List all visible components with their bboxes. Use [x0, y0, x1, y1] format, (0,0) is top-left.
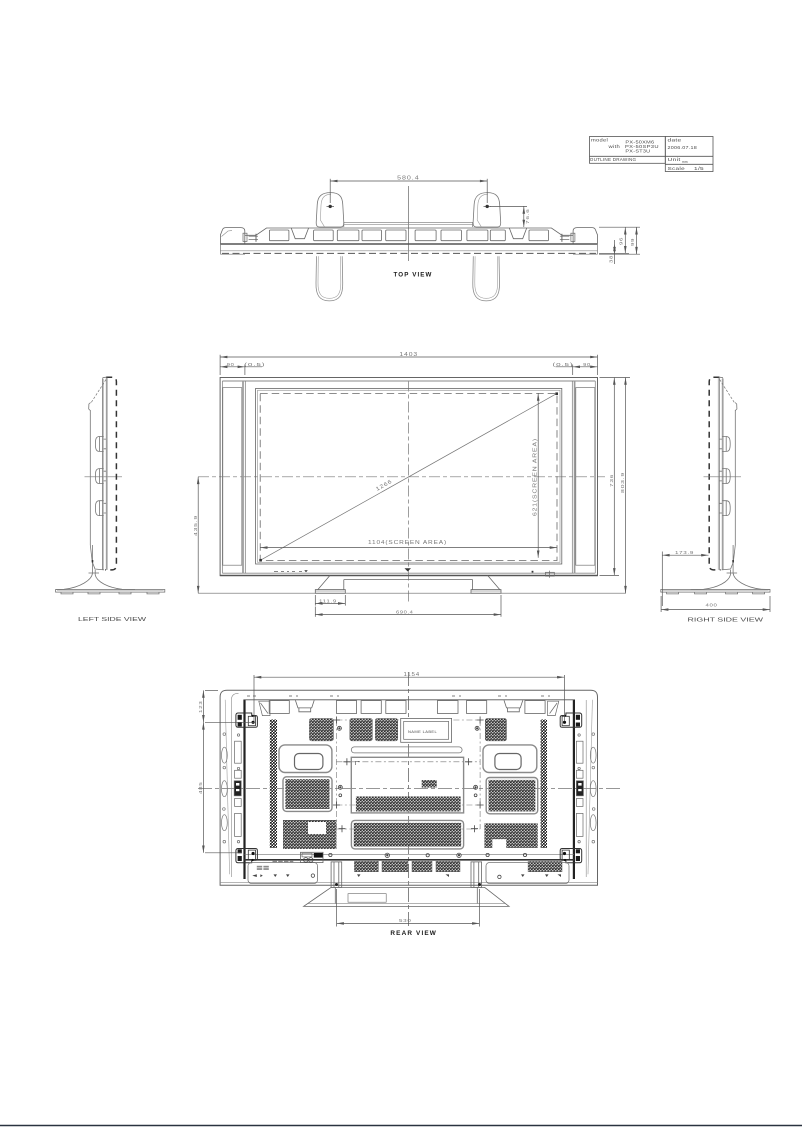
svg-text:1104(SCREEN AREA): 1104(SCREEN AREA)	[368, 540, 447, 546]
svg-text:803.9: 803.9	[620, 472, 625, 493]
svg-text:111.9: 111.9	[319, 598, 337, 603]
svg-text:2006.07.18: 2006.07.18	[668, 145, 698, 150]
svg-text:530: 530	[399, 918, 412, 923]
svg-text:580.4: 580.4	[397, 176, 419, 182]
svg-text:123: 123	[198, 701, 203, 714]
svg-text:Unit: Unit	[668, 157, 682, 162]
svg-text:model: model	[591, 138, 608, 143]
svg-text:90: 90	[583, 362, 591, 367]
svg-text:PX-ST3U: PX-ST3U	[625, 148, 650, 153]
svg-text:173.9: 173.9	[675, 550, 694, 555]
svg-text:(0.5): (0.5)	[244, 362, 265, 367]
svg-text:690.4: 690.4	[396, 609, 414, 614]
svg-text:1403: 1403	[399, 352, 418, 358]
svg-text:mm: mm	[682, 160, 688, 164]
svg-text:TOP VIEW: TOP VIEW	[394, 272, 433, 279]
svg-text:90: 90	[227, 362, 235, 367]
svg-text:435.9: 435.9	[193, 515, 198, 536]
svg-text:with: with	[609, 144, 621, 149]
svg-text:(0.5): (0.5)	[553, 362, 574, 367]
svg-text:621(SCREEN AREA): 621(SCREEN AREA)	[533, 438, 539, 516]
svg-text:LEFT SIDE VIEW: LEFT SIDE VIEW	[78, 617, 146, 623]
svg-text:OUTLINE DRAWING: OUTLINE DRAWING	[590, 157, 637, 162]
svg-text:date: date	[668, 138, 683, 143]
svg-text:76.6: 76.6	[525, 209, 530, 225]
svg-text:485: 485	[198, 782, 203, 795]
svg-text:REAR VIEW: REAR VIEW	[390, 930, 437, 937]
svg-text:Scale: Scale	[668, 166, 686, 171]
svg-text:96: 96	[619, 237, 624, 245]
svg-text:RIGHT SIDE VIEW: RIGHT SIDE VIEW	[688, 617, 764, 623]
svg-text:38: 38	[608, 255, 613, 263]
svg-text:400: 400	[706, 603, 718, 608]
svg-text:NAME LABEL: NAME LABEL	[408, 729, 437, 734]
svg-text:1/5: 1/5	[694, 166, 705, 171]
svg-text:1154: 1154	[404, 672, 421, 678]
svg-text:736: 736	[609, 474, 614, 487]
svg-text:99: 99	[630, 238, 635, 246]
